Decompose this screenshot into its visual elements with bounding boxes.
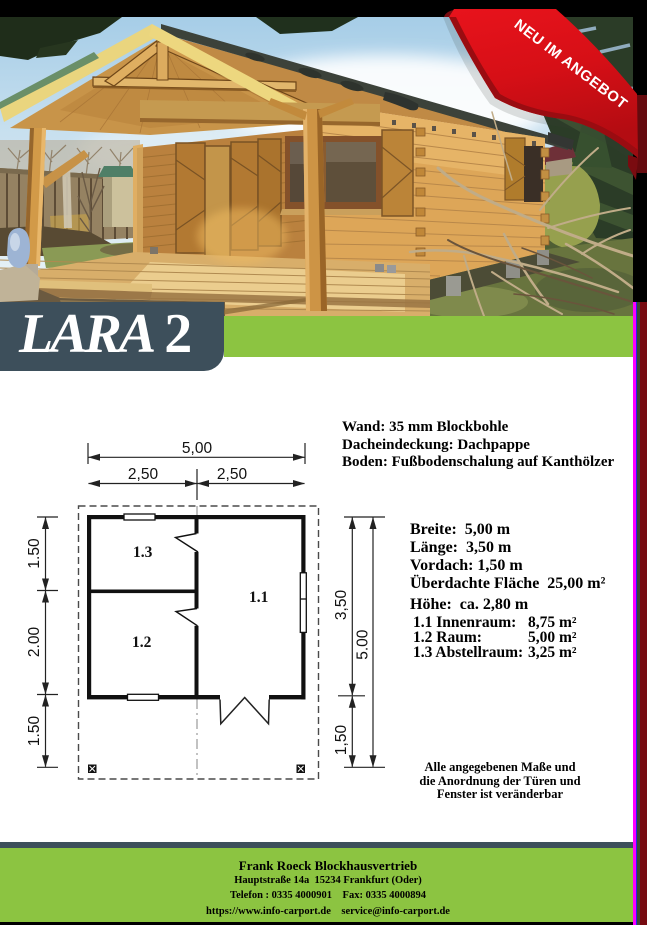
svg-text:1.3: 1.3: [133, 544, 153, 561]
svg-text:1.2: 1.2: [132, 634, 152, 651]
svg-text:2.00: 2.00: [26, 627, 43, 658]
svg-text:1.50: 1.50: [26, 716, 43, 747]
svg-text:1.50: 1.50: [26, 538, 43, 569]
svg-text:5,00: 5,00: [182, 440, 213, 457]
svg-text:3,50: 3,50: [333, 590, 350, 621]
svg-text:2,50: 2,50: [128, 466, 159, 483]
svg-text:5.00: 5.00: [355, 629, 372, 660]
svg-text:2,50: 2,50: [217, 466, 248, 483]
svg-text:1.1: 1.1: [249, 589, 268, 606]
svg-text:1,50: 1,50: [333, 725, 350, 756]
